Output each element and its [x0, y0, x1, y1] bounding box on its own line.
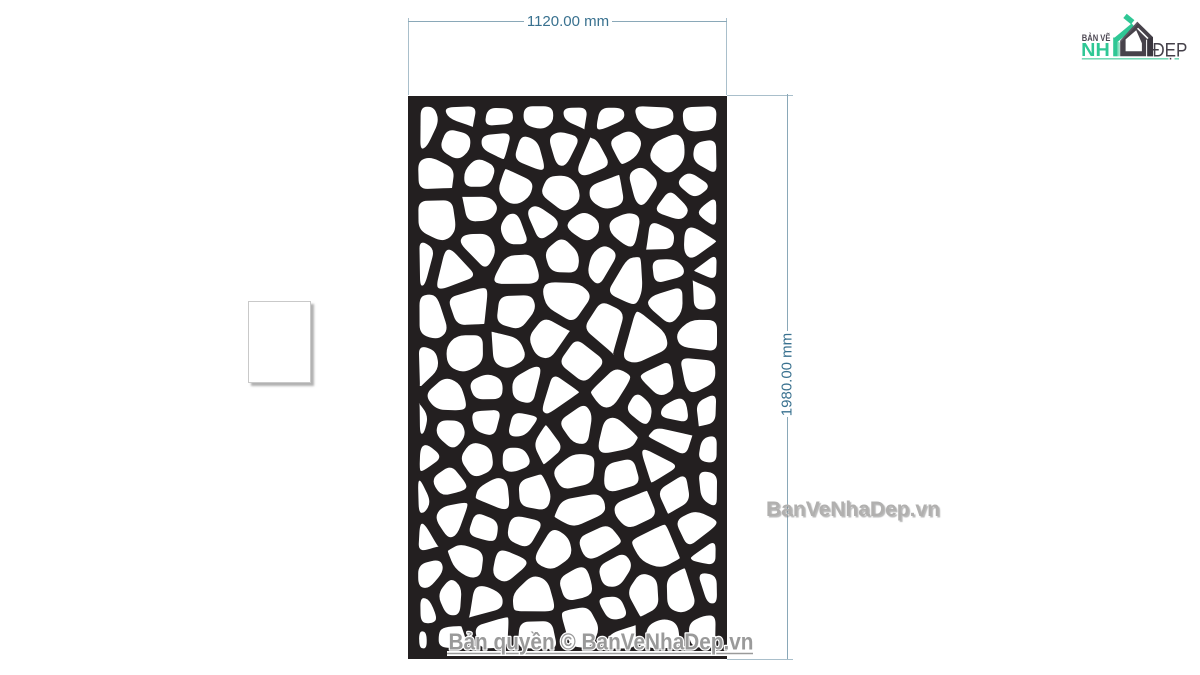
- svg-text:ĐẸP: ĐẸP: [1152, 39, 1187, 61]
- svg-text:NH: NH: [1081, 39, 1110, 60]
- svg-text:Bản quyền © BanVeNhaDep.vn: Bản quyền © BanVeNhaDep.vn: [449, 629, 754, 655]
